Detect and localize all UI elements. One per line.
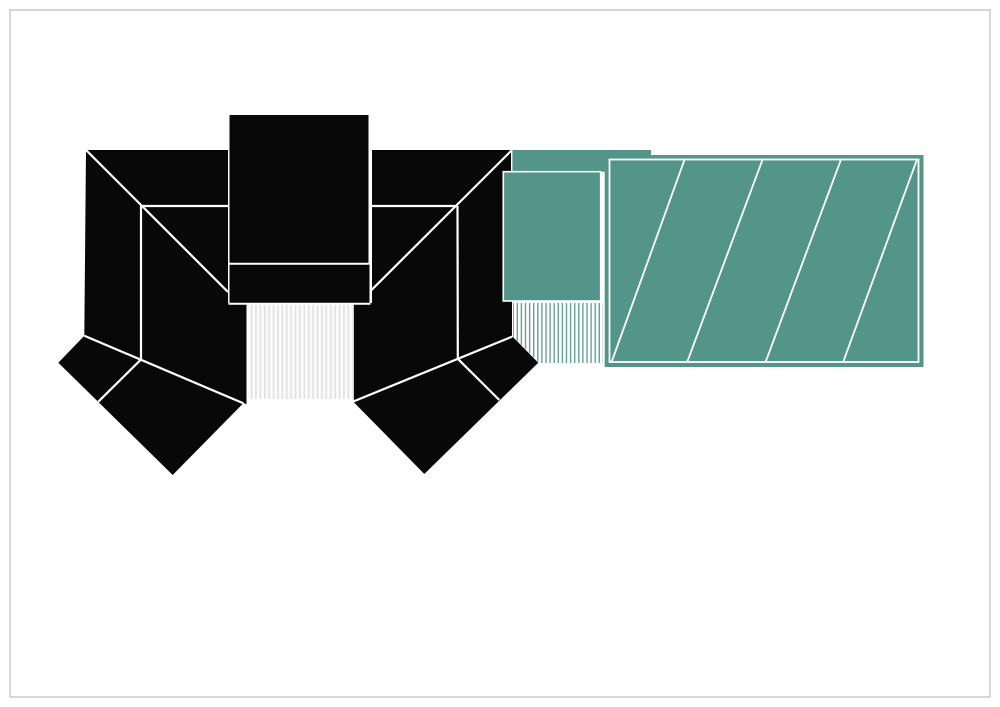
teal-hatched-roof (605, 155, 924, 367)
teal-front-roof (503, 172, 600, 301)
central-deck-stripes (248, 305, 352, 400)
roof-plan-canvas (0, 0, 1000, 707)
tower-band (230, 265, 370, 304)
tower-roof (230, 115, 369, 263)
drawing-sheet (0, 0, 1000, 707)
